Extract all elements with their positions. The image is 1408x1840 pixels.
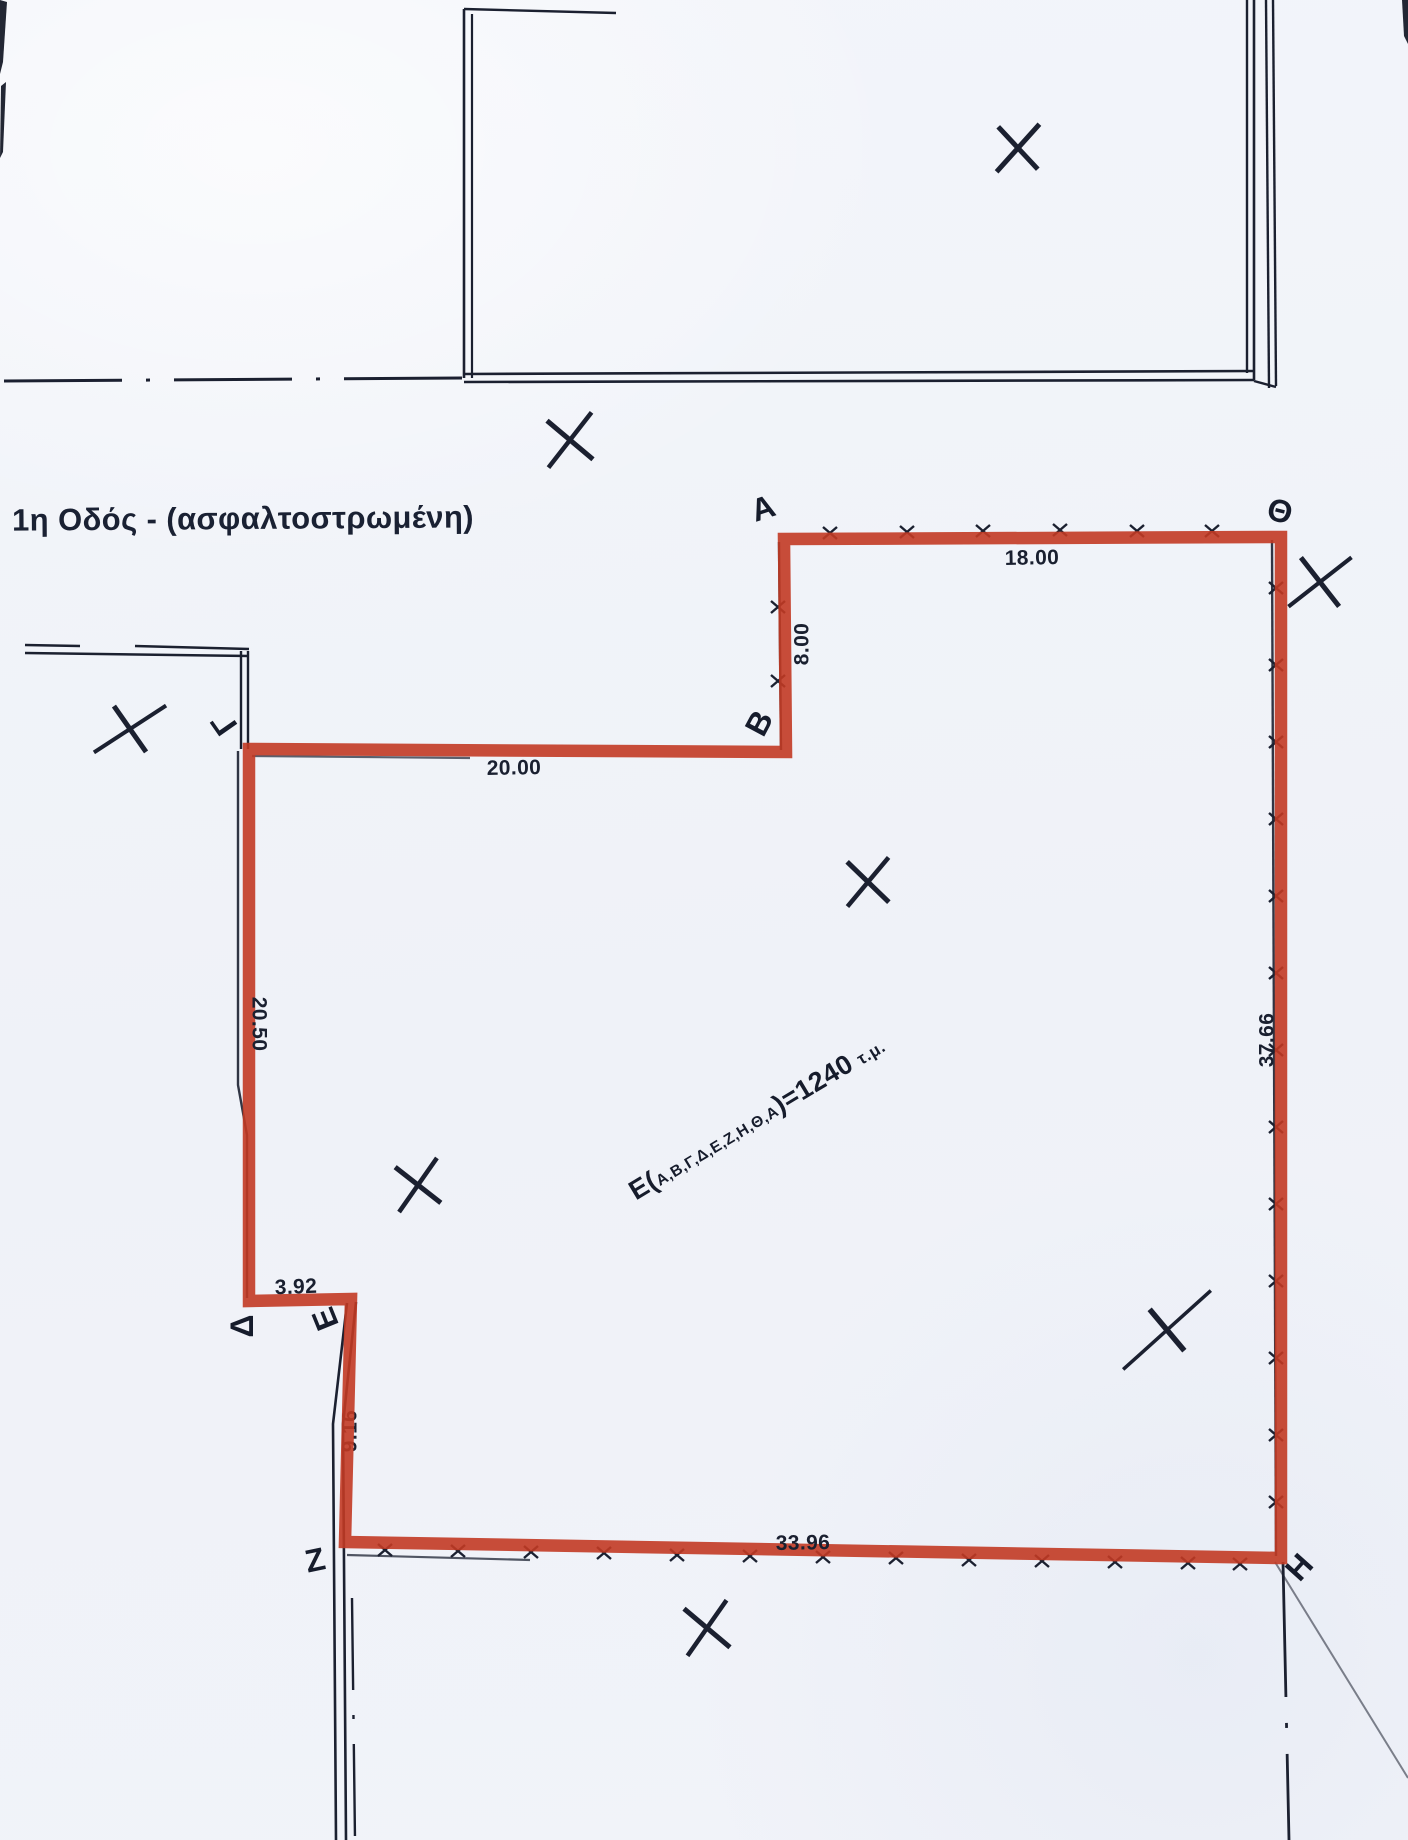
neighbor-boundary-line <box>1254 381 1276 387</box>
x-survey-mark <box>547 421 593 460</box>
vertex-label: Α <box>746 487 779 528</box>
dimension-label: 18.00 <box>1005 546 1060 570</box>
x-survey-mark <box>395 1167 441 1203</box>
neighbor-boundary-line <box>464 9 616 13</box>
dimension-label: 33.96 <box>776 1531 831 1555</box>
neighbor-boundary-line <box>1266 0 1269 388</box>
scan-artifact <box>0 0 7 74</box>
dashdot-boundary-line <box>4 378 463 381</box>
dimension-label: 20.00 <box>487 756 542 780</box>
neighbor-boundary-line <box>464 380 1254 382</box>
x-survey-mark <box>684 1609 730 1648</box>
scan-artifact <box>0 82 6 158</box>
dashdot-boundary-line <box>1283 1562 1289 1840</box>
x-survey-mark <box>1150 1309 1185 1350</box>
survey-line <box>347 1555 530 1560</box>
neighbor-boundary-line <box>1273 0 1276 386</box>
neighbor-boundary-line <box>135 646 249 649</box>
dimension-label: 3.92 <box>274 1275 317 1299</box>
vertex-label: Θ <box>1264 491 1297 532</box>
vertex-label: Γ <box>204 706 245 742</box>
vertex-label: Δ <box>224 1315 260 1338</box>
x-survey-mark <box>114 706 146 752</box>
scanned-survey-plan: 9.1618.008.0020.0020.503.9233.9637.66ΑΒΓ… <box>0 0 1408 1840</box>
site-plan-drawing: 9.1618.008.0020.0020.503.9233.9637.66ΑΒΓ… <box>0 0 1408 1840</box>
survey-line <box>1275 1562 1408 1778</box>
dimension-label: 8.00 <box>791 623 814 665</box>
dashdot-boundary-line <box>352 1598 355 1840</box>
x-survey-mark <box>1301 558 1339 607</box>
vertex-label: Ζ <box>302 1540 329 1579</box>
street-label: 1η Οδός - (ασφαλτοστρωμένη) <box>12 499 474 538</box>
neighbor-boundary-line <box>25 653 249 656</box>
scan-artifact <box>1402 0 1408 44</box>
dimension-label: 20.50 <box>248 997 271 1052</box>
vertex-label: Β <box>738 704 781 741</box>
neighbor-boundary-line <box>464 371 1254 374</box>
vertex-label: Ε <box>304 1302 345 1335</box>
dimension-label: 37.66 <box>1256 1013 1279 1068</box>
parcel-outline-red <box>249 537 1281 1558</box>
neighbor-boundary-line <box>25 645 80 646</box>
